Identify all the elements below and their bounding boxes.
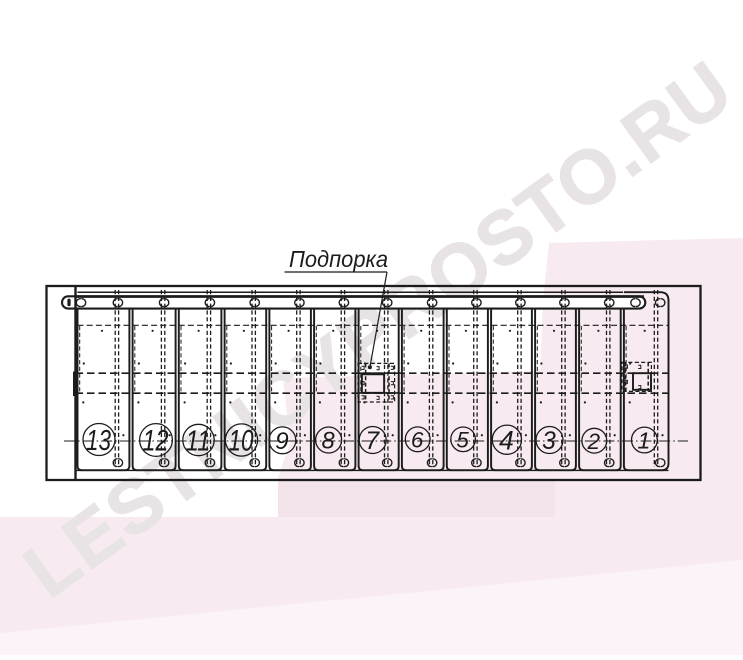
svg-text:1: 1 bbox=[637, 428, 650, 454]
svg-text:4: 4 bbox=[499, 425, 514, 455]
svg-text:Подпорка: Подпорка bbox=[289, 246, 388, 272]
svg-text:2: 2 bbox=[587, 429, 601, 454]
svg-text:5: 5 bbox=[456, 427, 469, 452]
svg-text:13: 13 bbox=[86, 425, 111, 457]
svg-text:9: 9 bbox=[275, 428, 289, 455]
svg-text:12: 12 bbox=[143, 425, 169, 458]
svg-text:3: 3 bbox=[542, 428, 556, 455]
svg-text:11: 11 bbox=[186, 425, 211, 457]
svg-text:6: 6 bbox=[411, 427, 424, 452]
svg-text:10: 10 bbox=[229, 425, 255, 458]
svg-text:7: 7 bbox=[365, 428, 380, 455]
svg-text:8: 8 bbox=[322, 429, 336, 455]
